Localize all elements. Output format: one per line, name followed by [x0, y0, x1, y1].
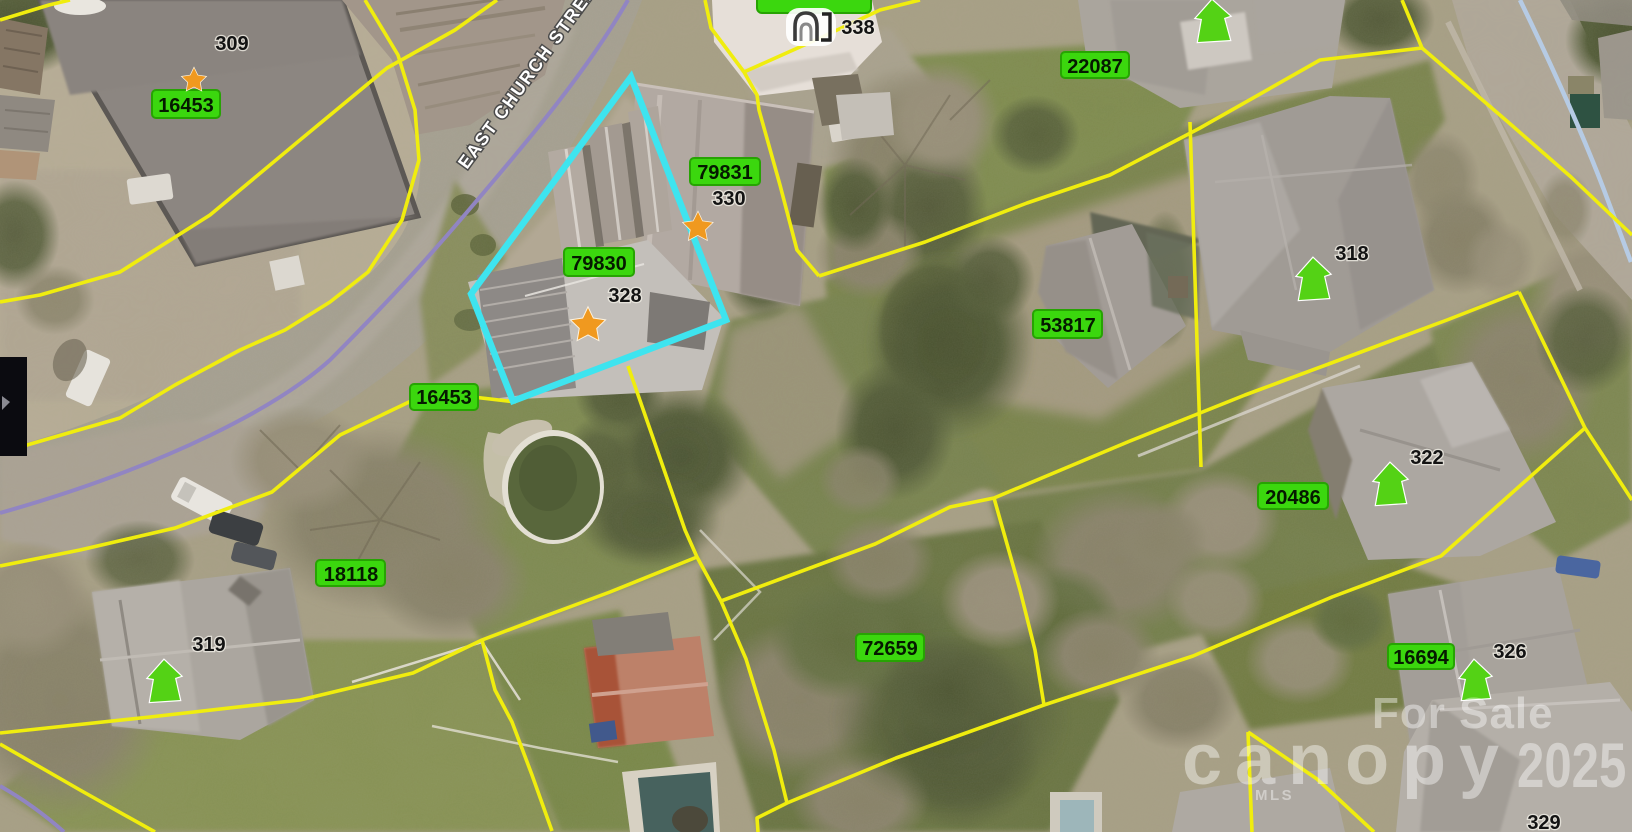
svg-text:318: 318	[1335, 243, 1368, 265]
svg-text:canopy: canopy	[1182, 720, 1512, 800]
svg-text:72659: 72659	[862, 638, 918, 660]
svg-text:16453: 16453	[416, 387, 472, 409]
svg-text:326: 326	[1493, 641, 1526, 663]
svg-text:319: 319	[192, 634, 225, 656]
svg-text:20486: 20486	[1265, 487, 1321, 509]
svg-text:18118: 18118	[324, 564, 379, 586]
svg-text:MLS: MLS	[1255, 787, 1294, 804]
svg-text:53817: 53817	[1040, 315, 1096, 337]
svg-text:330: 330	[712, 188, 745, 210]
svg-text:322: 322	[1410, 447, 1443, 469]
svg-text:16694: 16694	[1393, 647, 1449, 669]
svg-text:2025: 2025	[1517, 730, 1626, 800]
svg-text:79831: 79831	[697, 162, 753, 184]
svg-text:338: 338	[841, 17, 874, 39]
svg-text:22087: 22087	[1067, 56, 1123, 78]
svg-text:328: 328	[608, 285, 641, 307]
svg-text:329: 329	[1527, 812, 1560, 832]
svg-text:79830: 79830	[571, 253, 627, 275]
svg-text:309: 309	[215, 33, 248, 55]
svg-text:16453: 16453	[158, 95, 214, 117]
